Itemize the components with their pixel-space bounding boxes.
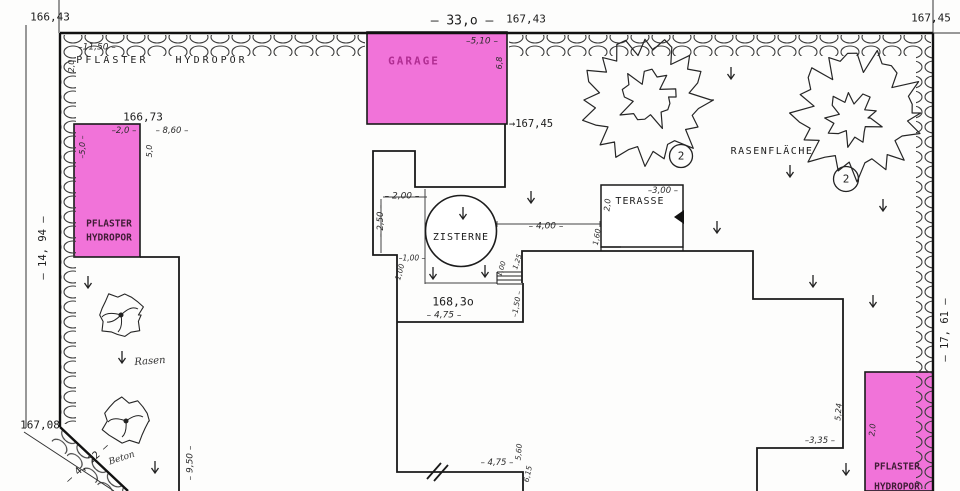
tree-canopy-outline [583, 39, 714, 166]
dim-5-0-right: 5,0 [146, 145, 154, 158]
dim-3-35: –3,35 – [805, 437, 835, 446]
dim-11-50: –11,50 – [78, 44, 116, 53]
elev-166-73: 166,73 [123, 112, 163, 123]
lbl-pflaster-br: PFLASTER [874, 462, 920, 472]
tree-canopy-outline [620, 69, 676, 128]
elev-168-30: 168,3o [432, 296, 474, 308]
marker-tree-1: 2 [678, 151, 685, 162]
direction-arrows [85, 67, 887, 475]
dim-2-0-br: 2,0 [868, 423, 877, 436]
elev-167-08: 167,08 [20, 420, 60, 431]
dim-5-0-inner: –5,0 – [79, 135, 87, 158]
site-plan-scan: 166,43–11,50 –2,0PFLASTER HYDROPOR166,73… [0, 0, 960, 491]
shrub-details [102, 308, 143, 437]
lbl-pflaster-hydropor-top: PFLASTER HYDROPOR [76, 56, 247, 66]
elev-167-43: 167,43 [506, 14, 546, 25]
elev-166-43: 166,43 [30, 12, 70, 23]
lbl-zisterne: ZISTERNE [433, 233, 489, 243]
site-plan-drawing [0, 0, 960, 491]
dim-4-75-top: – 4,75 – [427, 312, 462, 321]
elev-167-45-top: 167,45 [911, 13, 951, 24]
dim-2-0-terasse: 2,0 [603, 198, 612, 211]
lbl-terasse: TERASSE [615, 197, 664, 207]
dim-2-0-top: 2,0 [68, 60, 76, 73]
vegetation [100, 39, 921, 443]
tree-canopy-outline [825, 93, 883, 148]
dim-6-8: 6,8 [496, 57, 504, 70]
marker-tree-2: 2 [843, 174, 850, 185]
lbl-hydropor-br: HYDROPOR [874, 482, 920, 491]
dim-4-75-bottom: – 4,75 – [481, 459, 514, 468]
dim-5-10: –5,10 – [466, 38, 498, 47]
dim-5-24: 5,24 [834, 403, 844, 421]
elev-167-45-garage: →167,45 [509, 119, 553, 130]
dim-2-50: – 2,50 – [377, 205, 386, 238]
dim-2-00: – 2,00 – [385, 193, 420, 202]
lbl-garage: GARAGE [388, 56, 440, 67]
dim-9-50: – 9,50 – [187, 446, 196, 481]
dim-3-00: –3,00 – [648, 187, 678, 196]
cistern-circle [426, 196, 497, 267]
dim-8-60: – 8,60 – [156, 127, 189, 136]
dim-33-0: – 33,o – [431, 15, 494, 28]
building-outline [140, 124, 843, 491]
dim-5-60: 5,60 [515, 443, 524, 460]
lbl-pflaster-left-2: HYDROPOR [86, 233, 132, 243]
lbl-pflaster-left-1: PFLASTER [86, 219, 132, 229]
dim-2-0-left: –2,0 – [112, 127, 137, 136]
dim-14-94: – 14, 94 – [38, 216, 49, 279]
tree-canopy-outline [790, 51, 921, 182]
dim-1-00-a: –1,00 – [399, 254, 426, 262]
dim-4-00: – 4,00 – [529, 223, 564, 232]
dim-17-61: – 17, 61 – [940, 298, 951, 361]
lbl-rasenflaeche: RASENFLÄCHE [731, 147, 814, 157]
